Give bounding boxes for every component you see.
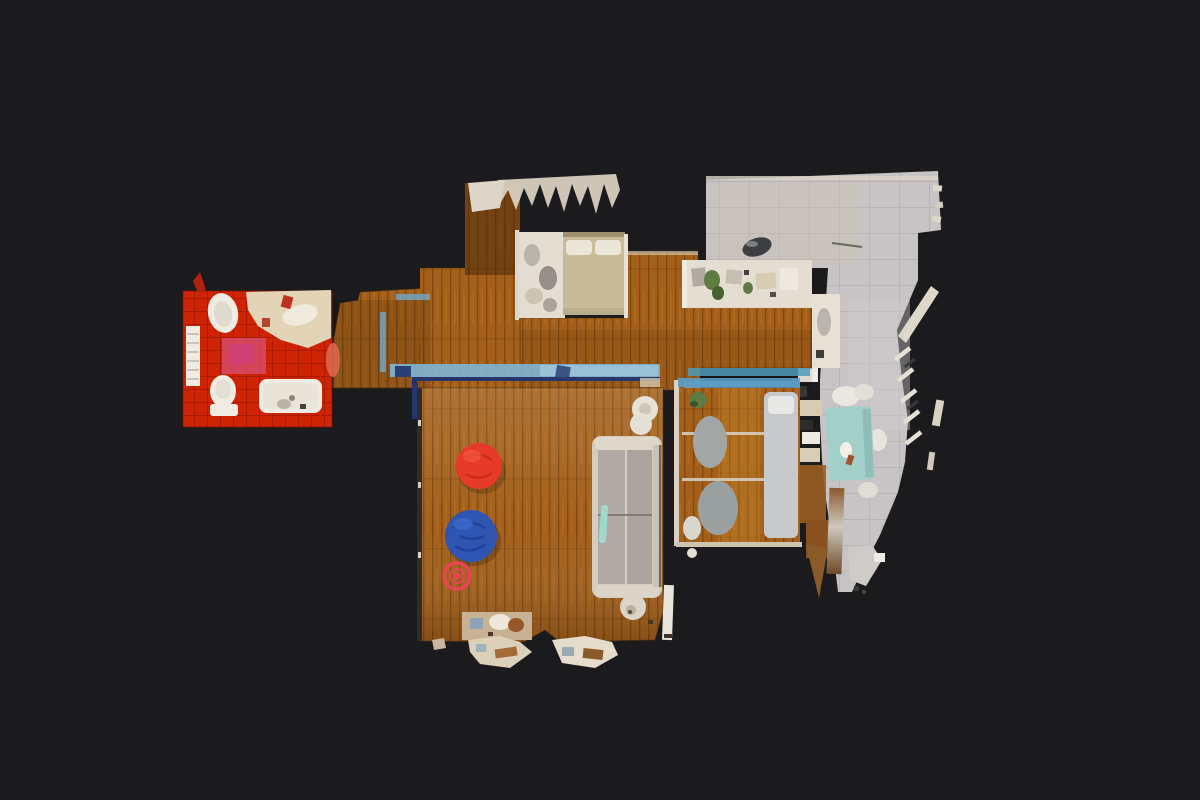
speck [648, 620, 653, 624]
clothes-blob [525, 288, 543, 304]
desk-item-blue [470, 618, 483, 629]
beige-wall-bit [640, 378, 660, 387]
speck [770, 292, 776, 297]
shelf-room-wall [682, 260, 687, 308]
desk-item-white [489, 614, 511, 630]
shelf-item [755, 272, 776, 289]
sill-bit [802, 432, 820, 444]
side-patch-speck [816, 350, 824, 358]
grill-highlight [746, 241, 758, 247]
speck [488, 632, 493, 636]
navy-wall-line [413, 377, 660, 381]
speck [854, 586, 859, 591]
hall-top-beige-line [626, 251, 698, 255]
fragment [848, 545, 882, 586]
bedroom-wall-left [515, 230, 519, 320]
bed-pillow [566, 240, 592, 255]
sofa-cushion-right [627, 450, 652, 584]
office-wall-left [674, 380, 679, 546]
red-artifact-spike [193, 272, 206, 293]
fragment [874, 553, 885, 562]
wall-speck [418, 420, 421, 426]
bathroom [183, 272, 340, 427]
wall-speck [418, 552, 421, 558]
wood-bit [800, 465, 826, 523]
office-white-blob [683, 516, 701, 540]
tub-fitting [289, 395, 295, 401]
plant [743, 282, 753, 294]
toilet-bowl [215, 379, 231, 399]
desk-chair-blob [693, 416, 727, 468]
tub-speck [300, 404, 306, 409]
bean-blue-highlight [453, 518, 473, 530]
shelf-item [780, 268, 798, 290]
plant-dark [690, 401, 698, 407]
desk-item-brown [508, 618, 524, 632]
bedroom-wall-right [624, 234, 628, 318]
side-patch-blob [817, 308, 831, 336]
speck [862, 590, 866, 594]
sofa [592, 413, 662, 620]
table-dot [628, 610, 632, 614]
floorplan-canvas [0, 0, 1200, 800]
bathroom-door-smear [326, 343, 340, 377]
shelf-box [725, 269, 742, 284]
terrace-top-edge [706, 176, 938, 180]
stair-edge-bit-2 [935, 202, 944, 209]
speck [744, 270, 749, 275]
counter-item [262, 318, 270, 327]
fragment [806, 545, 828, 598]
toilet-tank [210, 404, 238, 416]
scan-fringe-small [468, 180, 505, 212]
bed-foot-shade [563, 308, 624, 315]
mirror-strip [826, 488, 844, 574]
artifact-brown [583, 648, 604, 660]
clothes-blob [543, 298, 557, 312]
tub-item [277, 399, 291, 409]
sill-bit [800, 400, 822, 416]
tag-center-dot [454, 573, 461, 580]
desk-chair-blob [698, 481, 738, 535]
railing-slat [905, 430, 923, 445]
bottom-desk [462, 612, 532, 640]
desk-rod [682, 478, 778, 481]
office-artifact [687, 548, 697, 558]
fragment [927, 452, 935, 471]
office-couch-pillow [768, 396, 794, 414]
office-bottom-wall [676, 542, 802, 547]
clothes-blob [539, 266, 557, 290]
stair-edge-bit-1 [933, 184, 943, 191]
bean-bag-blue [445, 510, 497, 562]
floorplan-3d-viewport[interactable] [0, 0, 1200, 800]
white-strip [662, 585, 674, 640]
bean-bag-red [456, 443, 502, 489]
patio-chair [858, 482, 878, 498]
plant [712, 286, 724, 300]
bed-pillow [595, 240, 621, 255]
blue-corridor-sliver [396, 294, 430, 300]
terrace-warm-patch [710, 183, 860, 265]
sofa-armrest-top [595, 437, 659, 450]
clothes-blob [524, 244, 540, 266]
artifact-blue [562, 647, 574, 656]
sofa-armrest-bottom [595, 585, 659, 597]
artifact-blue [476, 644, 486, 652]
office-blue-top [678, 378, 800, 387]
wall-speck [418, 482, 421, 488]
bathroom-pink-core [230, 344, 254, 364]
bean-red-highlight [463, 450, 481, 462]
patio-chair [854, 384, 874, 400]
fragment [932, 400, 944, 427]
blue-corridor-vertical [380, 312, 386, 372]
blue-office-strip-upper [688, 368, 810, 376]
sofa-side-table-top [630, 413, 652, 435]
navy-blob [555, 365, 571, 380]
strip-speck [664, 634, 672, 638]
artifact-blob [432, 638, 446, 650]
sofa-console-edge [659, 445, 662, 587]
navy-blob [395, 366, 411, 377]
